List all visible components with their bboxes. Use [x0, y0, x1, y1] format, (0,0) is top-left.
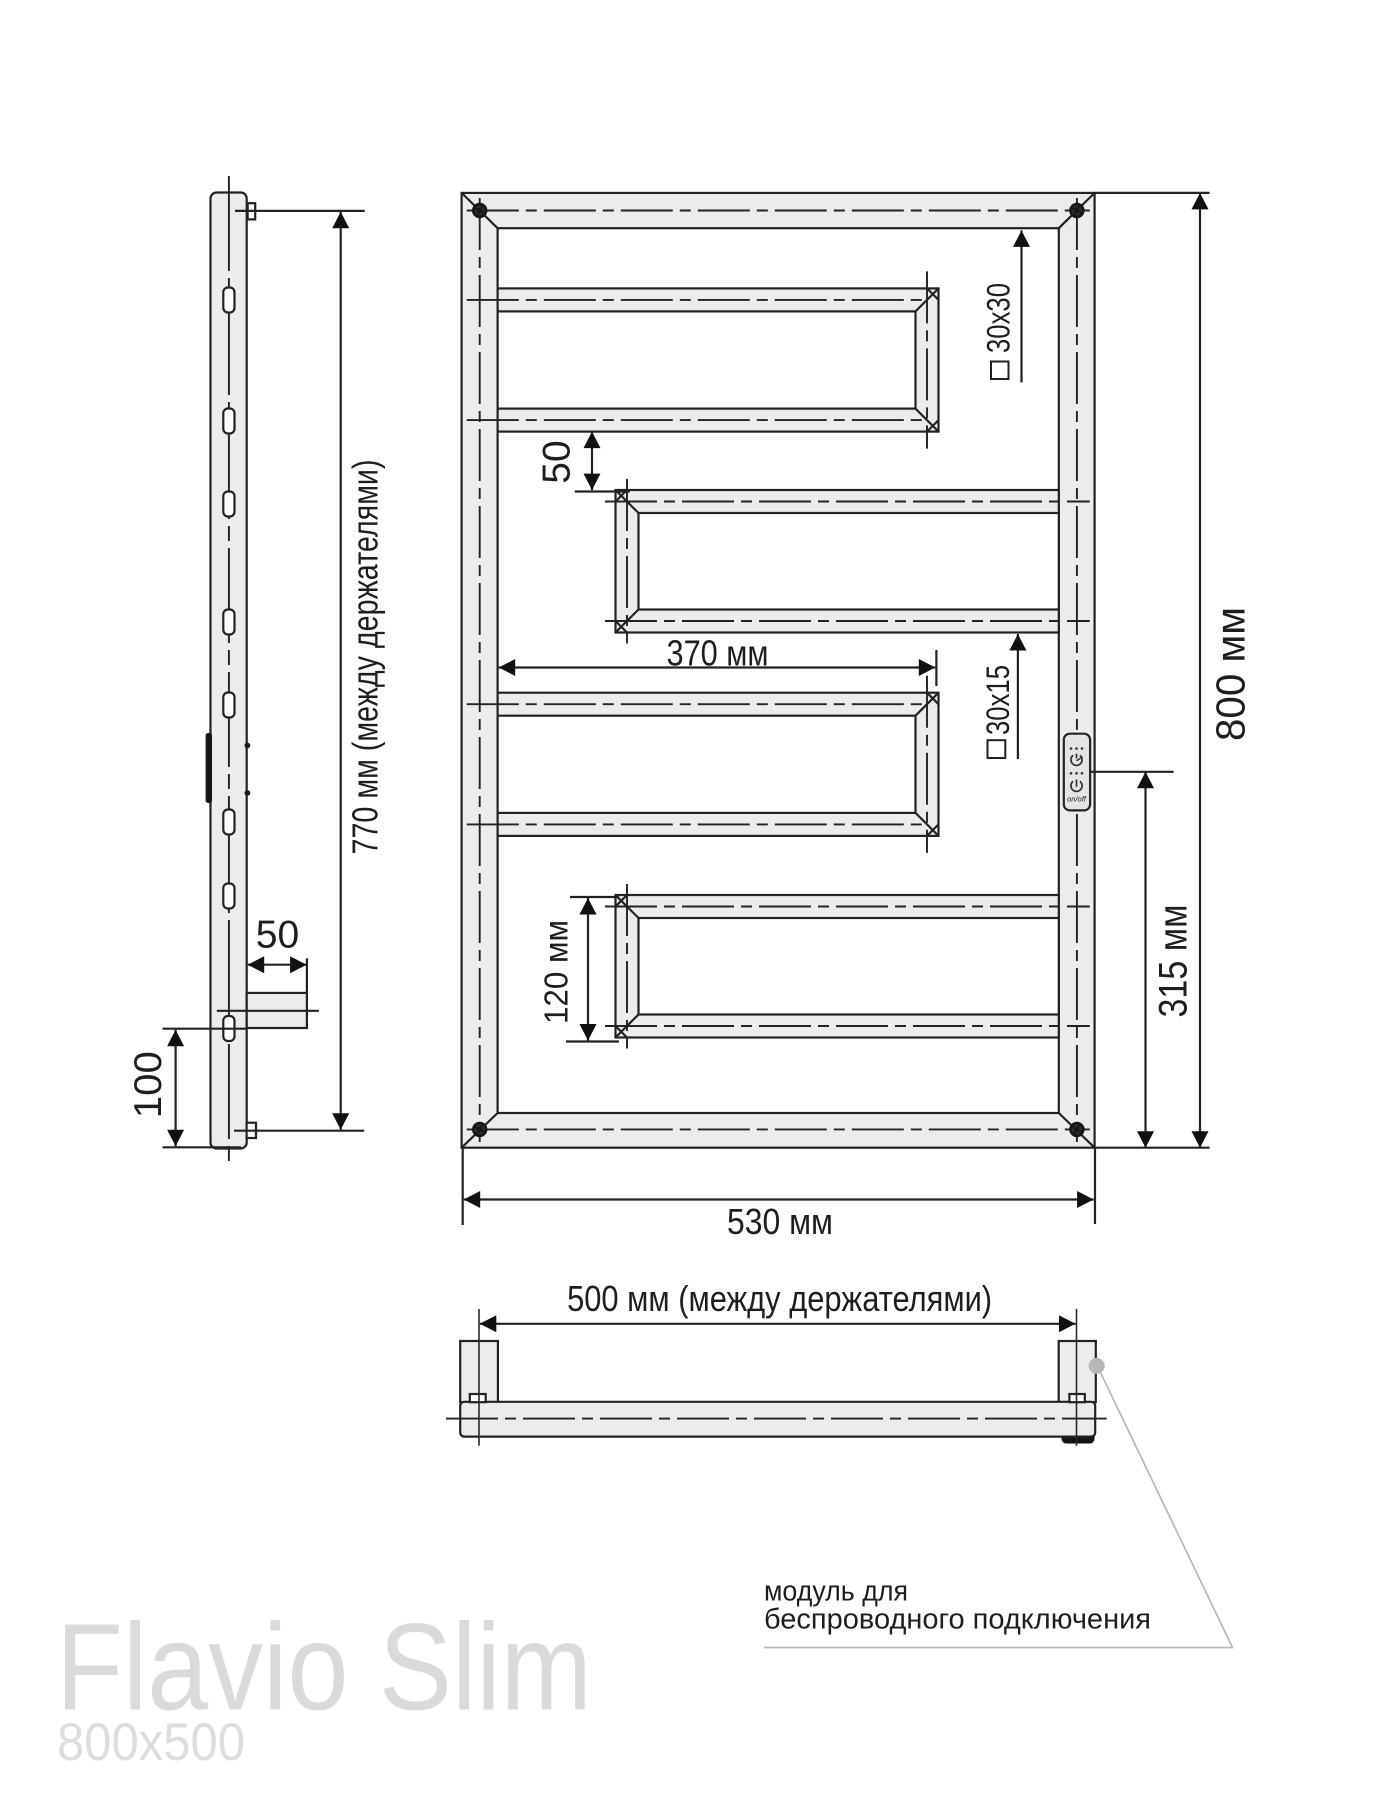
svg-text:50: 50	[256, 914, 299, 957]
svg-text:on/off: on/off	[1067, 795, 1087, 804]
svg-text:800x500: 800x500	[57, 1713, 245, 1772]
svg-text:120 мм: 120 мм	[538, 920, 575, 1024]
svg-text:370 мм: 370 мм	[667, 633, 769, 674]
svg-text:530 мм: 530 мм	[727, 1201, 833, 1242]
svg-text:беспроводного подключения: беспроводного подключения	[764, 1604, 1151, 1636]
svg-text:30x15: 30x15	[980, 665, 1016, 735]
svg-text:315 мм: 315 мм	[1151, 905, 1195, 1018]
svg-text:500 мм (между держателями): 500 мм (между держателями)	[567, 1278, 992, 1319]
svg-text:30x30: 30x30	[981, 283, 1017, 353]
svg-text:770 мм (между держателями): 770 мм (между держателями)	[345, 460, 386, 855]
svg-text:50: 50	[536, 440, 579, 483]
svg-text:100: 100	[127, 1051, 170, 1118]
svg-text:800 мм: 800 мм	[1208, 607, 1254, 741]
